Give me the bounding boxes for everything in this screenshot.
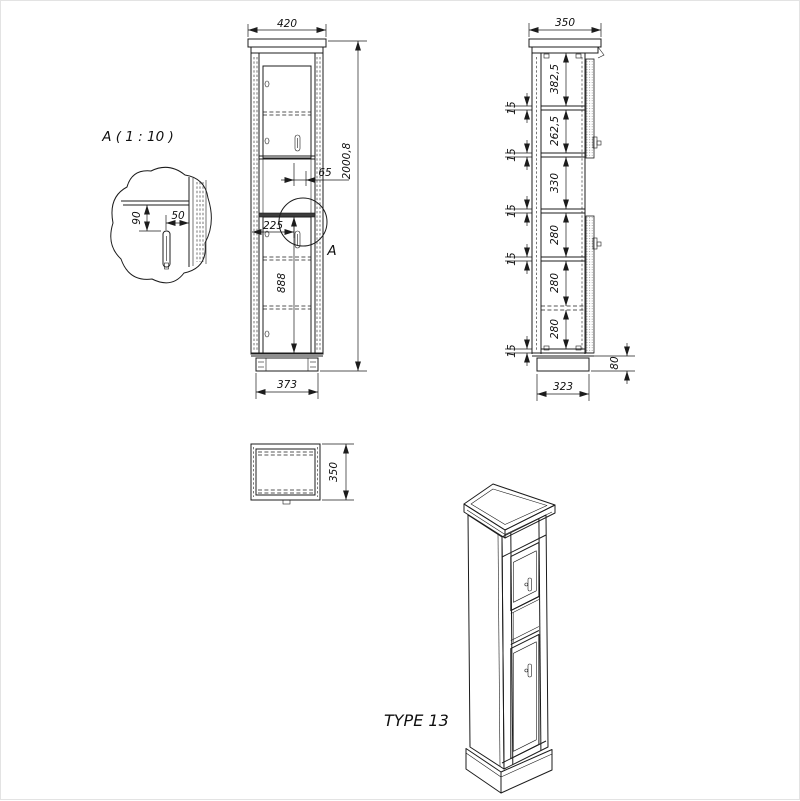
dim-350-side: 350 bbox=[555, 17, 575, 29]
dim-80: 80 bbox=[609, 356, 621, 370]
detail-ref-label: A bbox=[326, 243, 336, 259]
hinge-mark bbox=[265, 81, 269, 87]
detail-title: A ( 1 : 10 ) bbox=[101, 129, 174, 145]
perspective-upper-door bbox=[511, 543, 539, 611]
dim-350-top: 350 bbox=[328, 462, 340, 482]
dim-280: 280 bbox=[549, 225, 561, 245]
dim-15: 15 bbox=[506, 252, 518, 266]
perspective-plinth bbox=[466, 749, 552, 794]
section-dims: 382,5 262,5 330 280 280 280 bbox=[549, 53, 566, 349]
top-view-notch bbox=[283, 500, 290, 504]
drawing-sheet: A 420 2000,8 65 225 888 373 bbox=[0, 0, 800, 800]
detail-cloud-boundary bbox=[111, 167, 212, 283]
dim-225: 225 bbox=[263, 220, 283, 232]
dim-888: 888 bbox=[276, 273, 288, 293]
door-handle bbox=[528, 578, 532, 591]
front-view: A bbox=[248, 39, 337, 371]
perspective-open-shelf bbox=[511, 597, 539, 645]
hinge-mark bbox=[265, 331, 269, 337]
detail-view-a: A ( 1 : 10 ) 90 50 bbox=[101, 129, 211, 283]
dim-373: 373 bbox=[277, 379, 297, 391]
perspective-view bbox=[464, 484, 555, 793]
hinge-mark bbox=[265, 138, 269, 144]
dim-420: 420 bbox=[277, 18, 297, 30]
dim-15: 15 bbox=[506, 344, 518, 358]
dim-15: 15 bbox=[506, 148, 518, 162]
front-upper-door bbox=[263, 66, 311, 158]
dim-280: 280 bbox=[549, 319, 561, 339]
dim-15: 15 bbox=[506, 204, 518, 218]
top-view: 350 bbox=[251, 444, 354, 504]
dim-50: 50 bbox=[171, 210, 185, 222]
side-view bbox=[529, 39, 604, 371]
dim-262-5: 262,5 bbox=[549, 116, 561, 146]
perspective-lower-door bbox=[511, 635, 539, 759]
side-shelves bbox=[541, 106, 585, 349]
front-view-dimensions: 420 2000,8 65 225 888 373 bbox=[248, 18, 367, 399]
door-handle bbox=[528, 664, 532, 677]
dim-330: 330 bbox=[549, 173, 561, 193]
side-lower-door-section bbox=[586, 216, 594, 353]
dim-15: 15 bbox=[506, 101, 518, 115]
shelf-thickness-dims: 15 15 15 15 15 bbox=[505, 93, 532, 366]
type-label: TYPE 13 bbox=[384, 711, 449, 730]
dim-90: 90 bbox=[131, 211, 143, 225]
shelf-band bbox=[259, 213, 315, 217]
dim-65: 65 bbox=[318, 167, 332, 179]
dim-280: 280 bbox=[549, 273, 561, 293]
technical-drawing: A 420 2000,8 65 225 888 373 bbox=[1, 1, 800, 801]
dim-382-5: 382,5 bbox=[549, 64, 561, 94]
dim-2000-8: 2000,8 bbox=[341, 142, 353, 179]
dim-323: 323 bbox=[553, 381, 573, 393]
